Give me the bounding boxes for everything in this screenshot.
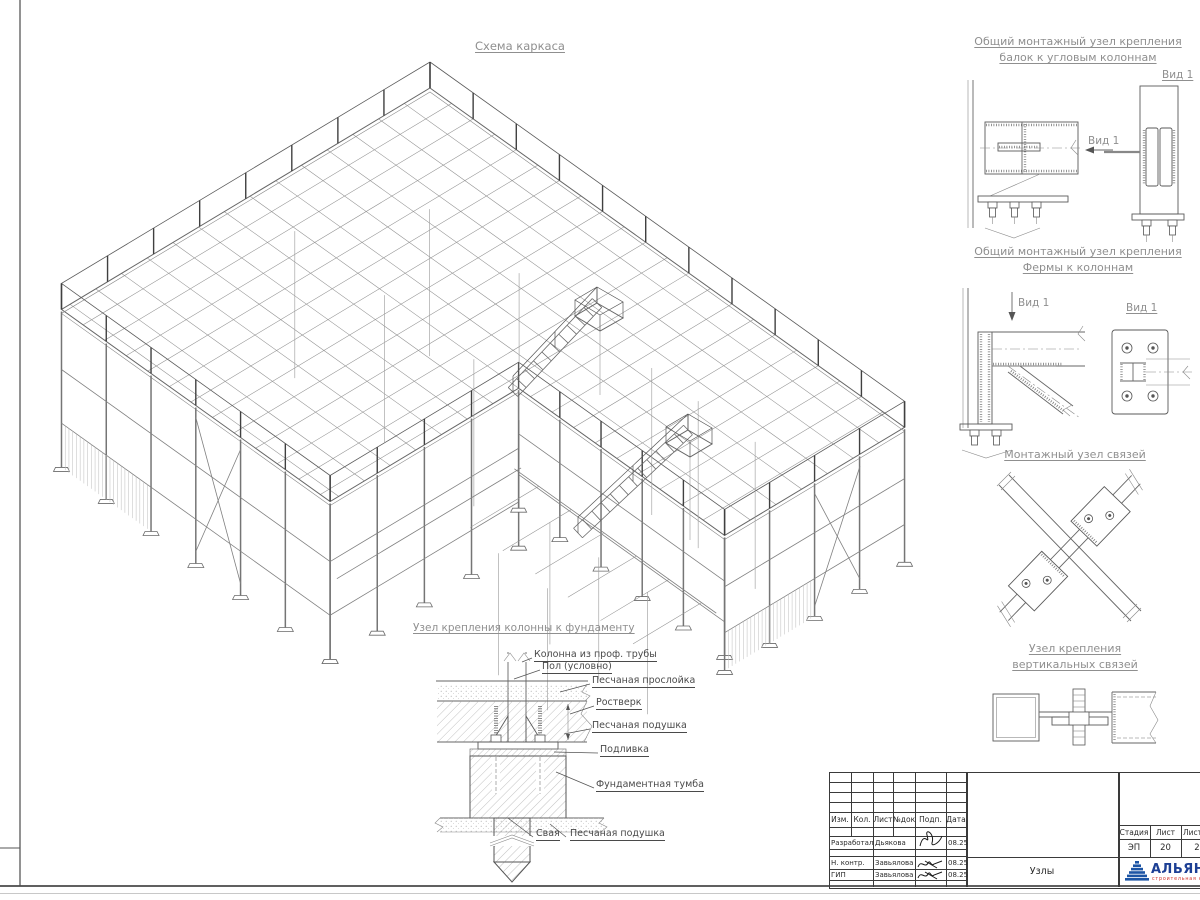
detail-truss-column-title: Общий монтажный узел крепления Фермы к к…: [958, 244, 1198, 276]
sheets-total: 2: [1181, 844, 1200, 853]
label-grillage: Ростверк: [596, 698, 642, 710]
detail-braces-title: Монтажный узел связей: [975, 447, 1175, 463]
label-sand-cushion: Песчаная подушка: [592, 721, 687, 733]
label-sand-layer: Песчаная прослойка: [592, 676, 695, 688]
row-role: ГИП: [831, 872, 846, 879]
col-data: Дата: [946, 816, 966, 824]
detail-corner-beam-view-title: Вид 1: [1162, 69, 1193, 81]
drawing-sheet: Схема каркаса Общий монтажный узел крепл…: [0, 0, 1200, 900]
label-floor: Пол (условно): [542, 662, 612, 674]
signature-gip: [917, 869, 945, 881]
label-pedestal: Фундаментная тумба: [596, 780, 704, 792]
detail-truss-column-view-title: Вид 1: [1126, 302, 1157, 314]
sheet-number: 20: [1150, 844, 1181, 853]
col-podp: Подп.: [915, 816, 946, 824]
detail-braces-drawing: [989, 465, 1151, 631]
label-column: Колонна из проф. трубы: [534, 650, 657, 662]
label-pile: Свая: [536, 829, 560, 841]
row-name: Дьякова: [875, 840, 906, 847]
company-name: АЛЬЯНС: [1151, 862, 1200, 877]
sheet-header: Лист: [1150, 829, 1181, 837]
row-role: Н. контр.: [831, 860, 865, 867]
label-grout: Подливка: [600, 745, 649, 757]
row-name: Завьялова: [875, 860, 913, 867]
row-name: Завьялова: [875, 872, 913, 879]
detail-corner-beam-arrow-label: Вид 1: [1088, 135, 1119, 147]
detail-corner-beam-title: Общий монтажный узел крепления балок к у…: [958, 34, 1198, 66]
col-list: Лист: [873, 816, 893, 824]
detail-truss-column-arrow-label: Вид 1: [1018, 297, 1049, 309]
foundation-detail-title: Узел крепления колонны к фундаменту: [413, 621, 628, 636]
company-logo-icon: [1124, 860, 1150, 885]
row-role: Разработал: [831, 840, 873, 847]
detail-vertical-braces-drawing: [993, 689, 1158, 745]
main-title: Схема каркаса: [420, 38, 620, 55]
detail-vertical-braces-title: Узел крепления вертикальных связей: [985, 641, 1165, 673]
label-sand-cushion-2: Песчаная подушка: [570, 829, 665, 841]
row-date: 08.25: [948, 840, 968, 847]
col-kol: Кол.: [851, 816, 873, 824]
document-name: Узлы: [966, 866, 1118, 877]
sheets-header: Листов: [1181, 829, 1200, 837]
stage-header: Стадия: [1118, 829, 1150, 837]
detail-corner-beam-drawing: [968, 80, 1184, 242]
stage-value: ЭП: [1118, 844, 1150, 853]
signature-razrabotal: [917, 831, 945, 849]
col-ndok: №док: [893, 816, 915, 824]
foundation-detail-drawing: [435, 652, 607, 882]
company-tagline: строительная компания: [1152, 877, 1200, 882]
frame-scheme-drawing: [53, 62, 912, 714]
col-izm: Изм.: [829, 816, 851, 824]
